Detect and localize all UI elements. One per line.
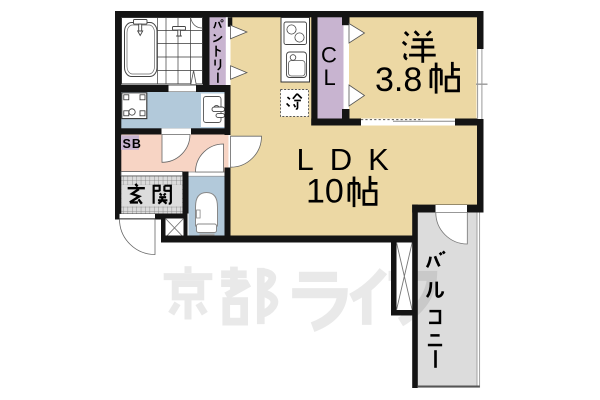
svg-text:3.8: 3.8 [375, 61, 422, 99]
svg-text:10: 10 [306, 173, 344, 211]
svg-text:L: L [324, 65, 336, 90]
svg-text:SB: SB [123, 137, 142, 151]
svg-text:C: C [321, 43, 337, 68]
